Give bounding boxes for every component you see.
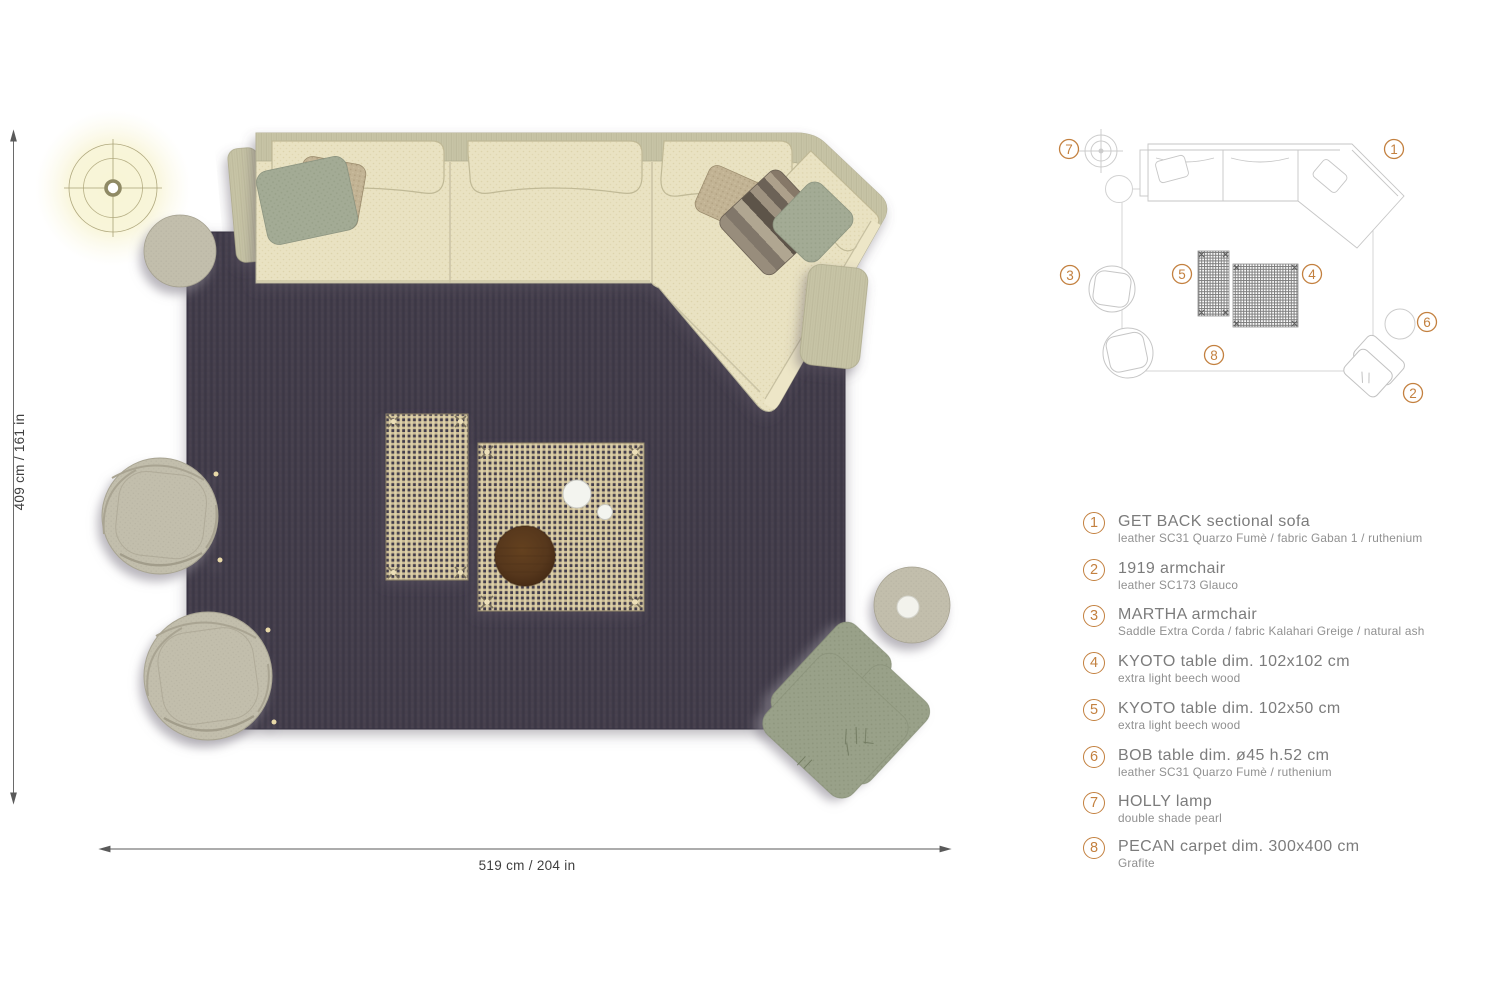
- svg-text:5: 5: [1178, 267, 1186, 282]
- svg-text:409 cm / 161 in: 409 cm / 161 in: [12, 414, 27, 511]
- svg-text:4: 4: [1308, 267, 1316, 282]
- svg-text:6: 6: [1423, 315, 1431, 330]
- svg-text:2: 2: [1409, 386, 1417, 401]
- svg-text:3: 3: [1066, 268, 1074, 283]
- svg-text:1: 1: [1390, 142, 1398, 157]
- svg-text:8: 8: [1210, 348, 1218, 363]
- svg-text:519 cm / 204 in: 519 cm / 204 in: [479, 858, 576, 873]
- svg-text:7: 7: [1065, 142, 1073, 157]
